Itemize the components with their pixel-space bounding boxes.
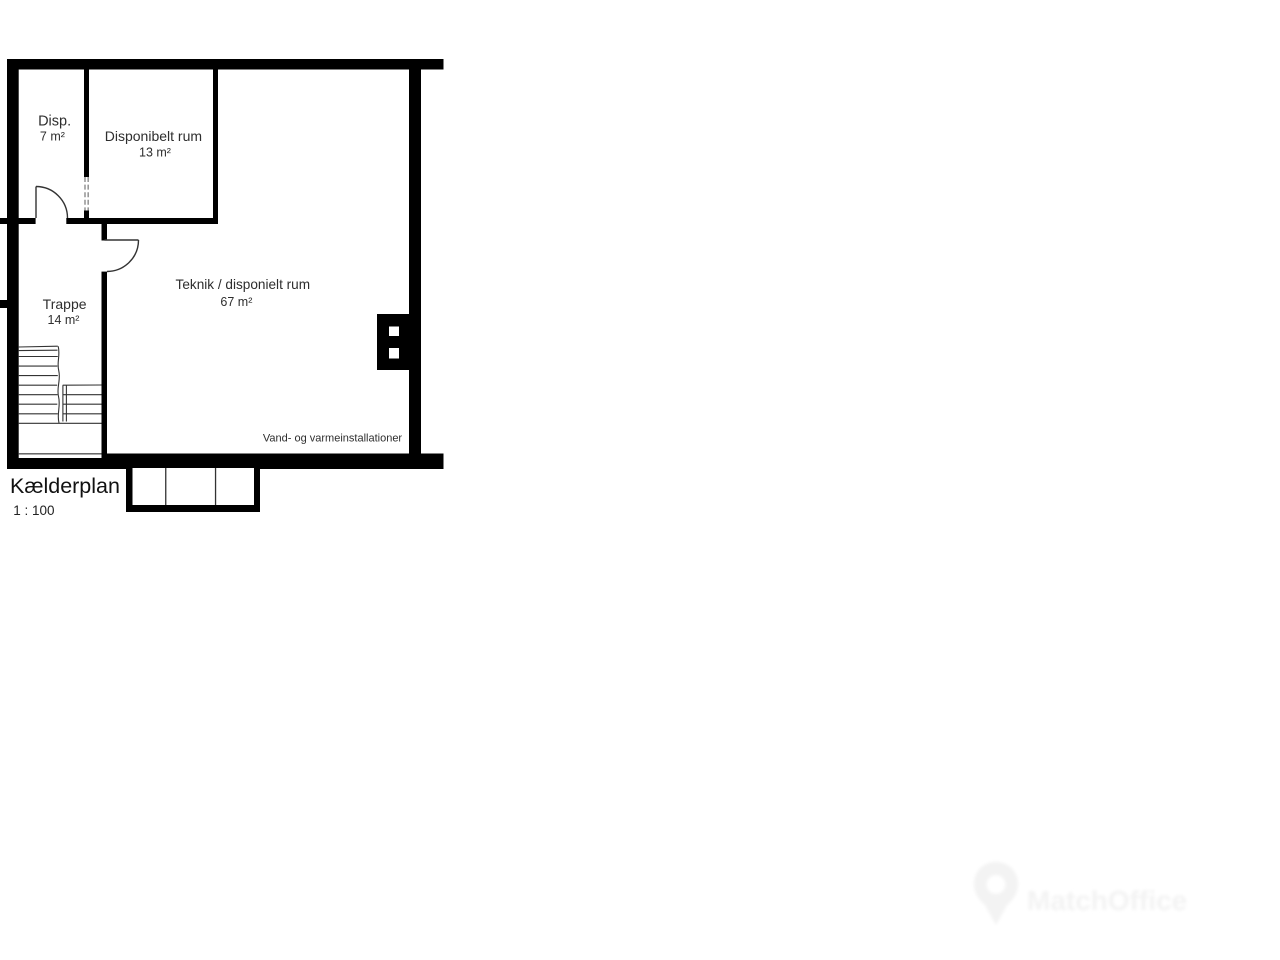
svg-text:Teknik / disponielt rum: Teknik / disponielt rum — [176, 277, 310, 292]
svg-text:Disponibelt rum: Disponibelt rum — [105, 128, 202, 144]
svg-text:Disp.: Disp. — [38, 114, 71, 130]
svg-text:67 m²: 67 m² — [220, 295, 252, 309]
svg-text:MatchOffice: MatchOffice — [1027, 885, 1187, 916]
svg-text:13 m²: 13 m² — [139, 146, 171, 160]
svg-text:Trappe: Trappe — [43, 296, 87, 312]
svg-text:Vand- og varmeinstallationer: Vand- og varmeinstallationer — [263, 433, 403, 445]
svg-text:1 : 100: 1 : 100 — [13, 503, 54, 518]
svg-text:14 m²: 14 m² — [48, 313, 80, 327]
svg-text:Kælderplan: Kælderplan — [10, 474, 120, 498]
svg-text:7 m²: 7 m² — [40, 129, 65, 143]
